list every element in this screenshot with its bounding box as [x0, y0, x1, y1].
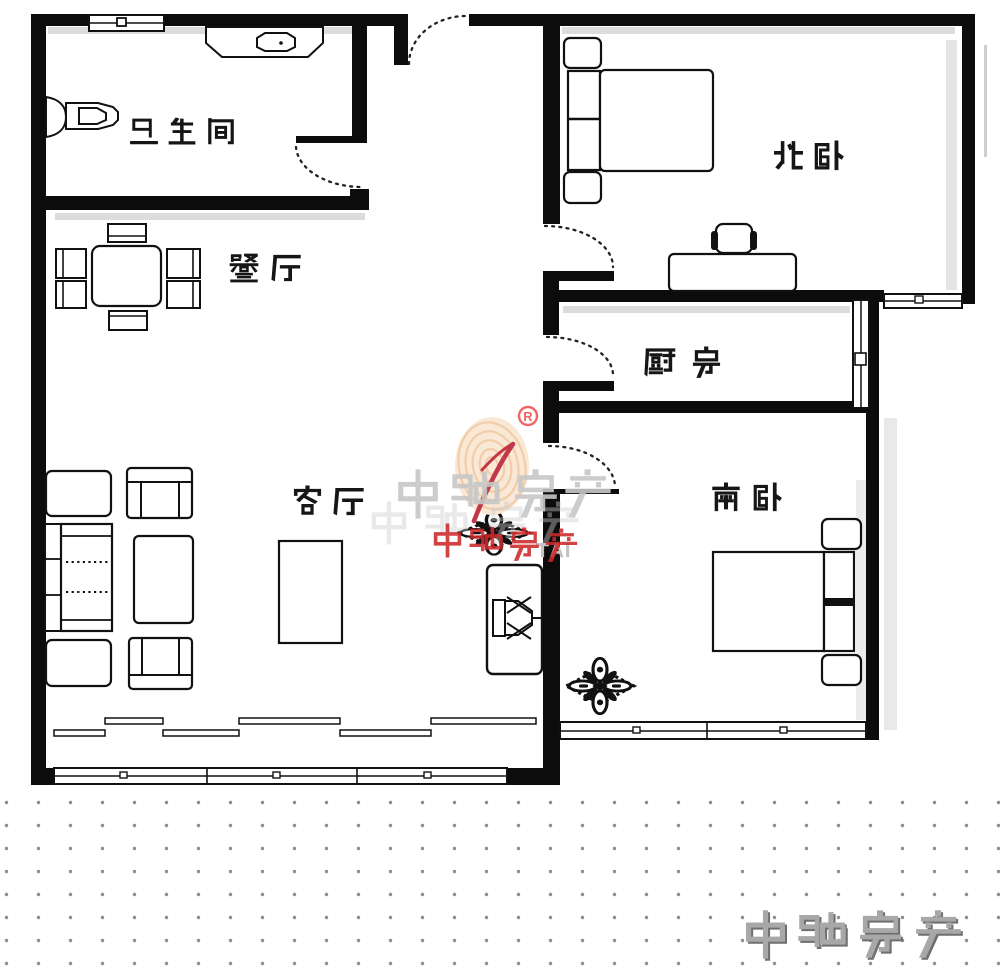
svg-text:R: R [523, 409, 533, 424]
